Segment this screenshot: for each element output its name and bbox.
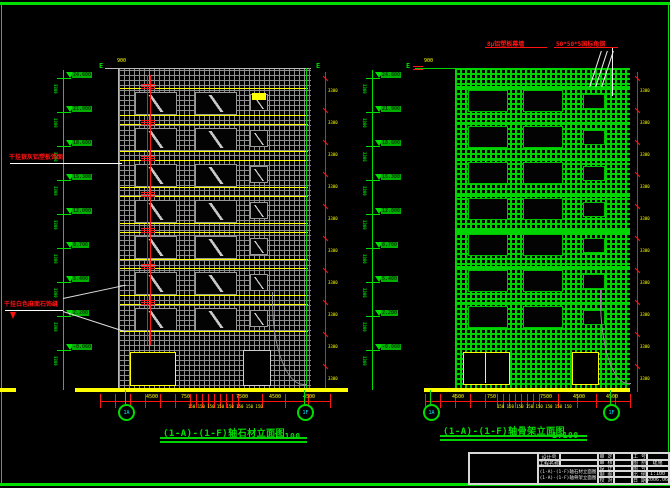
frame-window: [468, 198, 508, 220]
bottom-subdim-row: 150 150 150 150 150 150 150 150: [497, 404, 572, 409]
level-value: 24.600: [72, 72, 92, 78]
top-dim-value: 900: [424, 58, 433, 64]
storefront: [130, 352, 176, 386]
top-dim-value: 900: [117, 58, 126, 64]
window: [135, 128, 177, 151]
level-value: 12.000: [381, 208, 401, 214]
bottom-dim-tick: [175, 394, 176, 408]
annotation-panel-underline: [485, 47, 547, 48]
entry-door: [572, 352, 599, 385]
glass-slash-icon: [202, 203, 230, 220]
level-value: 24.600: [381, 72, 401, 78]
entry-door: [243, 350, 271, 386]
side-dim-value: 3300: [328, 152, 338, 157]
left-drawing-scale: 1:100: [274, 432, 301, 441]
level-interval: 3300: [362, 84, 367, 94]
ground-line: [75, 388, 348, 392]
annotation-steel-leader: [612, 48, 613, 96]
storefront: [463, 352, 510, 385]
stone-joint-ticks: [141, 227, 155, 233]
side-dim-value: 3300: [640, 312, 650, 317]
stone-joint-ticks: [141, 263, 155, 269]
bottom-dim-tick: [160, 394, 161, 408]
level-value: 5.400: [381, 276, 398, 282]
frame-window: [523, 234, 563, 256]
level-interval: 3300: [53, 186, 58, 196]
frame-window: [523, 90, 563, 112]
ground-line: [0, 388, 16, 392]
floor-line: [120, 259, 308, 260]
axis-stem: [610, 390, 611, 404]
glass-slash-icon: [202, 167, 230, 184]
window: [135, 236, 177, 259]
stone-joint-ticks: [141, 83, 155, 89]
stone-joint-ticks: [141, 155, 155, 161]
level-axis-line: [63, 70, 64, 390]
cad-sheet: 24.600330021.900330018.600330015.3003300…: [0, 0, 670, 488]
window: [195, 164, 237, 187]
window: [135, 308, 177, 331]
level-tick: [57, 146, 71, 147]
leader-lower-diag-2: [63, 311, 126, 332]
title-block-drawing-name: (1-A)-(1-F)轴骨架立面图: [540, 475, 597, 481]
level-interval: 3300: [362, 186, 367, 196]
glass-slash-icon: [253, 241, 264, 253]
side-dim-value: 3300: [328, 216, 338, 221]
floor-line: [120, 151, 308, 152]
level-tick: [57, 316, 71, 317]
bottom-dim-value: 750: [487, 394, 496, 400]
right-drawing-scale: 1:100: [552, 431, 579, 440]
bottom-dim-tick: [470, 394, 471, 408]
window-small: [250, 238, 268, 255]
floor-line: [120, 115, 308, 116]
glass-slash-icon: [202, 311, 230, 328]
window: [135, 164, 177, 187]
frame-window: [468, 270, 508, 292]
level-value: 15.300: [72, 174, 92, 180]
level-value: 21.900: [72, 106, 92, 112]
facade-edge-line: [309, 68, 310, 390]
side-dim-value: 3300: [640, 184, 650, 189]
level-interval: 3300: [362, 152, 367, 162]
axis-bubble: 1A: [118, 404, 135, 421]
glass-slash-icon: [253, 205, 264, 217]
level-interval: 3300: [53, 254, 58, 264]
level-interval: 3300: [53, 84, 58, 94]
title-block-logo-area: [469, 453, 539, 484]
side-dim-value: 3300: [328, 120, 338, 125]
level-tick: [57, 78, 71, 79]
window: [195, 308, 237, 331]
window: [195, 236, 237, 259]
bottom-dim-value: 4500: [146, 394, 158, 400]
frame-window: [468, 234, 508, 256]
level-tick: [57, 350, 71, 351]
bottom-dim-tick: [285, 394, 286, 408]
window-small: [250, 166, 268, 183]
level-tick: [366, 146, 380, 147]
stone-red-joint: [150, 75, 151, 345]
side-dim-value: 3300: [328, 312, 338, 317]
side-dim-line: [325, 72, 326, 392]
floor-line: [120, 187, 308, 188]
level-tick: [366, 112, 380, 113]
frame-window-small: [583, 238, 605, 253]
frame-window: [468, 306, 508, 328]
level-tick: [57, 180, 71, 181]
sheet-border-right: [668, 2, 669, 486]
side-dim-value: 3300: [328, 248, 338, 253]
frame-floor-line: [455, 230, 630, 233]
bottom-dim-value: 4500: [452, 394, 464, 400]
frame-window: [523, 162, 563, 184]
bottom-dim-value: 4500: [573, 394, 585, 400]
window: [195, 272, 237, 295]
level-tick: [366, 214, 380, 215]
section-mark-dash: [413, 69, 423, 70]
storefront-mullion: [485, 352, 486, 383]
level-interval: 3300: [362, 288, 367, 298]
side-dim-value: 3300: [640, 120, 650, 125]
level-tick: [57, 214, 71, 215]
frame-window-small: [583, 130, 605, 145]
leader-arrow-icon: [10, 312, 16, 319]
axis-bubble: 1F: [603, 404, 620, 421]
level-value: -0.060: [72, 344, 92, 350]
side-dim-value: 3300: [640, 376, 650, 381]
roof-line: [105, 68, 118, 69]
side-dim-value: 3300: [640, 216, 650, 221]
glass-slash-icon: [253, 169, 264, 181]
annotation-steel-underline: [554, 47, 618, 48]
frame-window-small: [583, 94, 605, 109]
floor-line: [120, 223, 308, 224]
level-interval: 3300: [53, 322, 58, 332]
stone-red-joint: [147, 75, 148, 345]
title-block-meta-value: 2006.06: [646, 476, 669, 484]
bottom-dim-tick: [330, 394, 331, 408]
side-dim-value: 3300: [328, 280, 338, 285]
glass-slash-icon: [253, 313, 264, 325]
level-value: 12.000: [72, 208, 92, 214]
bottom-dim-tick: [100, 394, 101, 408]
frame-floor-line: [455, 158, 630, 161]
frame-window: [523, 306, 563, 328]
window-small: [250, 130, 268, 147]
level-interval: 3300: [53, 288, 58, 298]
frame-window-small: [583, 202, 605, 217]
side-dim-value: 3300: [328, 184, 338, 189]
level-interval: 3300: [362, 322, 367, 332]
title-block: 设计号工程名称(1-A)-(1-F)轴石材立面图(1-A)-(1-F)轴骨架立面…: [468, 452, 670, 485]
stone-joint-ticks: [141, 119, 155, 125]
ground-line: [424, 388, 630, 392]
frame-window: [523, 270, 563, 292]
side-dim-value: 3300: [640, 152, 650, 157]
level-interval: 3300: [362, 356, 367, 366]
bottom-dim-value: 4500: [269, 394, 281, 400]
stone-joint-ticks: [141, 191, 155, 197]
axis-stem: [125, 390, 126, 404]
side-dim-value: 3300: [640, 280, 650, 285]
roof-line: [415, 68, 455, 69]
window: [135, 92, 177, 115]
level-tick: [366, 180, 380, 181]
glass-slash-icon: [202, 275, 230, 292]
level-value: 8.700: [72, 242, 89, 248]
frame-window-small: [583, 166, 605, 181]
bottom-dim-value: 750: [181, 394, 190, 400]
section-mark: E: [406, 62, 410, 70]
window-small: [250, 274, 268, 291]
title-block-drawing-names: (1-A)-(1-F)轴石材立面图(1-A)-(1-F)轴骨架立面图: [537, 465, 599, 484]
sheet-border-left: [1, 2, 2, 486]
frame-window: [523, 126, 563, 148]
bottom-dim-tick: [440, 394, 441, 408]
window-small: [250, 310, 268, 327]
axis-stem: [430, 390, 431, 404]
level-tick: [57, 248, 71, 249]
leader-upper-left: [10, 163, 122, 164]
glass-slash-icon: [202, 131, 230, 148]
level-tick: [366, 78, 380, 79]
section-mark: E: [99, 62, 103, 70]
level-tick: [366, 248, 380, 249]
bottom-dim-value: 7500: [236, 394, 248, 400]
level-value: 21.900: [381, 106, 401, 112]
glass-slash-icon: [253, 277, 264, 289]
glass-slash-icon: [202, 95, 230, 112]
frame-floor-line: [455, 266, 630, 269]
level-tick: [57, 112, 71, 113]
level-value: -0.060: [381, 344, 401, 350]
window: [195, 128, 237, 151]
level-value: 15.300: [381, 174, 401, 180]
frame-window: [468, 90, 508, 112]
annotation-lower-left: 干挂白色麻面石饰缝: [4, 299, 58, 308]
frame-floor-line: [455, 86, 630, 89]
bottom-dim-tick: [485, 394, 486, 408]
section-mark: E: [316, 62, 320, 70]
bottom-subdim-row: 150 150 150 150 150 150 150 150: [188, 404, 263, 409]
frame-window: [468, 126, 508, 148]
level-interval: 3300: [53, 356, 58, 366]
frame-window: [468, 162, 508, 184]
window: [135, 200, 177, 223]
side-dim-value: 3300: [328, 376, 338, 381]
window: [195, 200, 237, 223]
leader-lower-left: [5, 310, 63, 311]
glass-slash-icon: [253, 133, 264, 145]
frame-window-small: [583, 274, 605, 289]
highlight-panel: [252, 93, 266, 100]
bottom-dim-tick: [596, 394, 597, 408]
section-mark-dash: [413, 66, 423, 67]
axis-bubble: 1F: [297, 404, 314, 421]
axis-stem: [304, 390, 305, 404]
window: [195, 92, 237, 115]
bottom-dim-value: 4500: [606, 394, 618, 400]
level-value: 8.700: [381, 242, 398, 248]
level-tick: [366, 282, 380, 283]
level-axis-line: [372, 70, 373, 390]
level-tick: [366, 316, 380, 317]
frame-floor-line: [455, 194, 630, 197]
bottom-dim-tick: [630, 394, 631, 408]
side-dim-value: 3300: [328, 88, 338, 93]
level-tick: [57, 282, 71, 283]
side-dim-value: 3300: [640, 88, 650, 93]
level-interval: 3300: [362, 118, 367, 128]
level-value: 5.400: [72, 276, 89, 282]
level-interval: 3300: [53, 220, 58, 230]
sheet-border-top: [0, 2, 670, 5]
window: [135, 272, 177, 295]
leader-lower-diag-1: [63, 285, 126, 299]
bottom-dim-tick: [115, 394, 116, 408]
title-block-role-value: [613, 476, 633, 484]
level-tick: [366, 350, 380, 351]
level-value: 18.600: [72, 140, 92, 146]
glass-slash-icon: [202, 239, 230, 256]
side-dim-value: 3300: [640, 248, 650, 253]
axis-bubble: 1A: [423, 404, 440, 421]
level-interval: 3300: [362, 254, 367, 264]
side-dim-line: [637, 72, 638, 392]
side-dim-value: 3300: [640, 344, 650, 349]
level-interval: 3300: [362, 220, 367, 230]
stone-joint-ticks: [141, 299, 155, 305]
left-title-underline-2: [160, 441, 307, 443]
frame-window: [523, 198, 563, 220]
annotation-upper-left: 干挂银灰铝塑板饰面: [9, 152, 63, 161]
window-small: [250, 202, 268, 219]
level-interval: 3300: [53, 118, 58, 128]
frame-floor-line: [455, 122, 630, 125]
side-dim-value: 3300: [328, 344, 338, 349]
bottom-dim-value: 7500: [540, 394, 552, 400]
level-value: 18.600: [381, 140, 401, 146]
level-value: 2.200: [381, 310, 398, 316]
bottom-dim-line: [100, 401, 330, 402]
